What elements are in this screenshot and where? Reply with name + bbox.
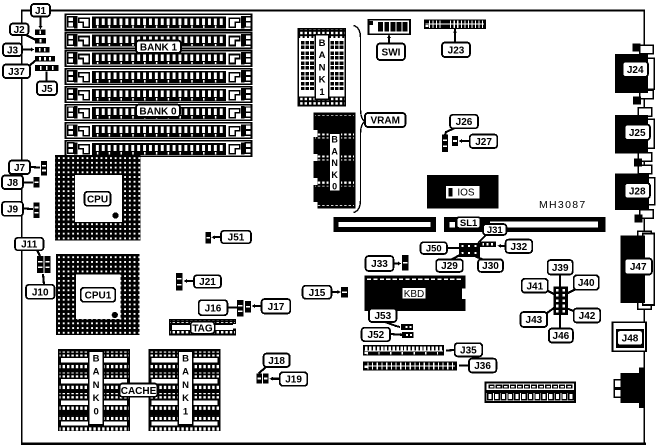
svg-text:J47: J47	[630, 262, 647, 273]
svg-text:B: B	[319, 38, 326, 49]
svg-text:J18: J18	[268, 356, 285, 367]
svg-text:0: 0	[332, 182, 337, 192]
svg-text:J50: J50	[426, 244, 442, 255]
svg-text:J27: J27	[475, 137, 492, 148]
svg-text:CACHE: CACHE	[121, 386, 157, 397]
svg-text:J51: J51	[228, 233, 245, 244]
svg-text:J48: J48	[622, 334, 639, 345]
svg-text:K: K	[319, 75, 326, 86]
svg-text:J21: J21	[199, 277, 216, 288]
svg-text:A: A	[182, 367, 189, 378]
svg-text:VRAM: VRAM	[370, 116, 399, 127]
svg-text:J2: J2	[14, 25, 26, 36]
svg-text:N: N	[319, 62, 326, 73]
svg-text:IOS: IOS	[457, 188, 475, 199]
svg-text:J29: J29	[441, 261, 458, 272]
svg-text:N: N	[182, 380, 189, 391]
svg-text:K: K	[331, 170, 338, 180]
svg-text:1: 1	[319, 87, 325, 98]
svg-text:J40: J40	[578, 278, 595, 289]
svg-text:J23: J23	[448, 45, 465, 56]
svg-text:B: B	[331, 135, 338, 145]
svg-text:J25: J25	[629, 128, 646, 139]
svg-text:J32: J32	[511, 242, 528, 253]
svg-text:J46: J46	[553, 331, 570, 342]
svg-text:J28: J28	[629, 186, 646, 197]
svg-text:CPU1: CPU1	[85, 290, 112, 301]
svg-text:J41: J41	[526, 281, 543, 292]
svg-text:J3: J3	[7, 45, 19, 56]
svg-text:N: N	[331, 158, 338, 168]
svg-text:J36: J36	[474, 361, 491, 372]
svg-text:J5: J5	[41, 84, 53, 95]
svg-text:K: K	[93, 393, 100, 404]
svg-text:J53: J53	[374, 311, 391, 322]
svg-text:KBD: KBD	[404, 289, 425, 300]
svg-text:J33: J33	[371, 259, 388, 270]
svg-text:J39: J39	[552, 263, 569, 274]
svg-text:TAG: TAG	[192, 323, 213, 334]
svg-text:J35: J35	[460, 345, 477, 356]
svg-text:J43: J43	[526, 315, 543, 326]
svg-text:CPU: CPU	[87, 194, 108, 205]
svg-text:J8: J8	[7, 178, 19, 189]
svg-text:J37: J37	[8, 67, 25, 78]
svg-text:J30: J30	[482, 261, 499, 272]
svg-text:1: 1	[183, 406, 189, 417]
svg-text:A: A	[319, 50, 326, 61]
svg-text:A: A	[331, 146, 338, 156]
svg-text:MH3087: MH3087	[539, 199, 587, 211]
svg-text:J15: J15	[309, 288, 326, 299]
svg-text:B: B	[182, 354, 189, 365]
svg-text:J9: J9	[7, 204, 19, 215]
svg-text:B: B	[93, 354, 100, 365]
svg-text:A: A	[93, 367, 100, 378]
svg-text:J19: J19	[285, 375, 302, 386]
svg-text:J26: J26	[456, 117, 473, 128]
svg-text:N: N	[93, 380, 100, 391]
svg-text:J7: J7	[14, 163, 26, 174]
svg-text:J17: J17	[268, 302, 285, 313]
svg-text:J24: J24	[627, 65, 644, 76]
svg-text:J16: J16	[205, 303, 222, 314]
svg-text:J11: J11	[21, 240, 38, 251]
svg-text:SWI: SWI	[382, 47, 401, 58]
svg-text:K: K	[182, 393, 189, 404]
svg-text:J52: J52	[368, 330, 385, 341]
svg-text:J1: J1	[35, 6, 47, 17]
svg-text:BANK 0: BANK 0	[139, 106, 177, 117]
svg-text:BANK 1: BANK 1	[140, 42, 178, 53]
svg-text:0: 0	[93, 406, 98, 417]
svg-text:SL1: SL1	[460, 218, 478, 229]
svg-text:J10: J10	[32, 287, 49, 298]
svg-text:J31: J31	[487, 225, 504, 236]
svg-text:J42: J42	[579, 311, 596, 322]
